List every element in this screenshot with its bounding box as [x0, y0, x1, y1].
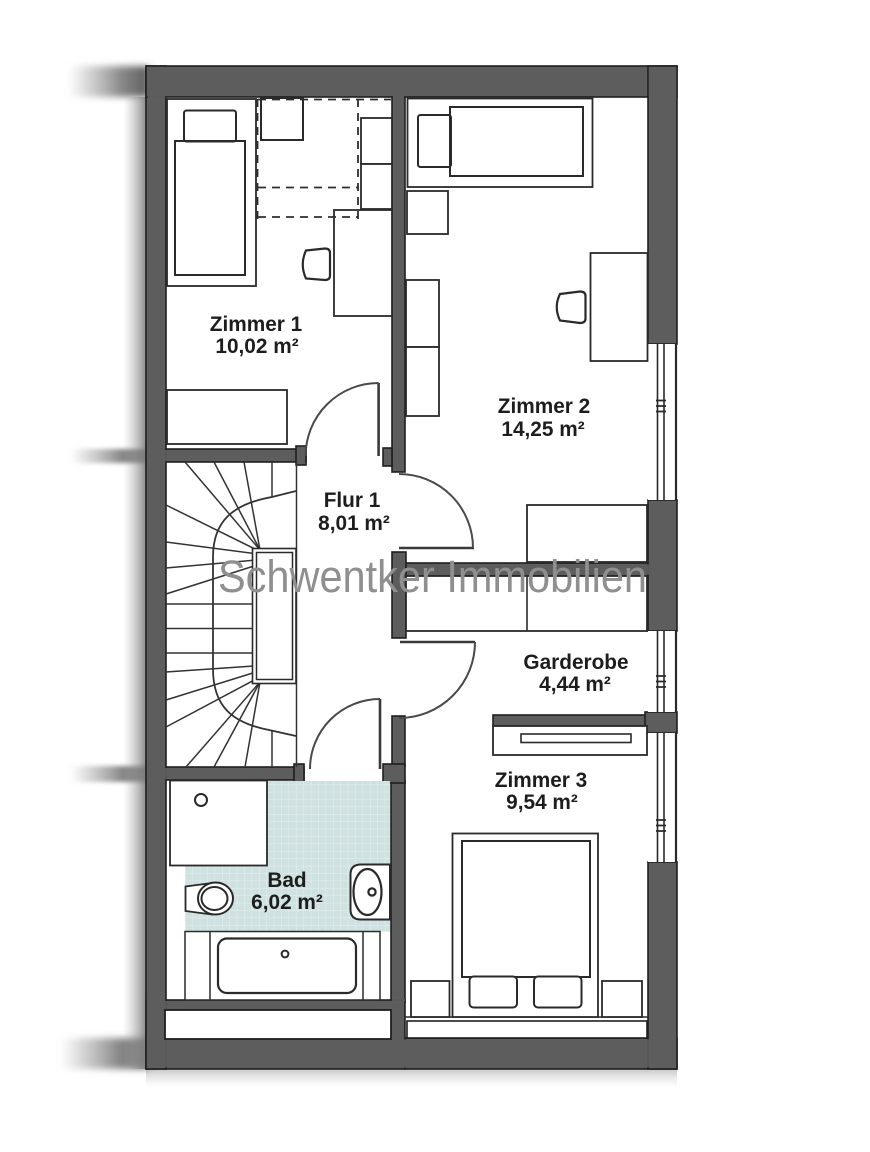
svg-text:14,25 m²: 14,25 m²	[501, 418, 584, 441]
svg-text:Flur 1: Flur 1	[324, 489, 381, 512]
svg-text:4,44 m²: 4,44 m²	[539, 673, 611, 696]
svg-text:Bad: Bad	[267, 869, 306, 892]
svg-text:Zimmer 3: Zimmer 3	[495, 769, 587, 792]
svg-text:Schwentker Immobilien: Schwentker Immobilien	[218, 551, 647, 602]
svg-text:9,54 m²: 9,54 m²	[506, 791, 578, 814]
svg-text:10,02 m²: 10,02 m²	[215, 335, 298, 358]
svg-text:6,02 m²: 6,02 m²	[251, 891, 323, 914]
svg-text:Garderobe: Garderobe	[523, 651, 628, 674]
svg-text:8,01 m²: 8,01 m²	[318, 512, 390, 535]
svg-text:Zimmer 2: Zimmer 2	[498, 395, 590, 418]
svg-text:Zimmer 1: Zimmer 1	[210, 313, 302, 336]
